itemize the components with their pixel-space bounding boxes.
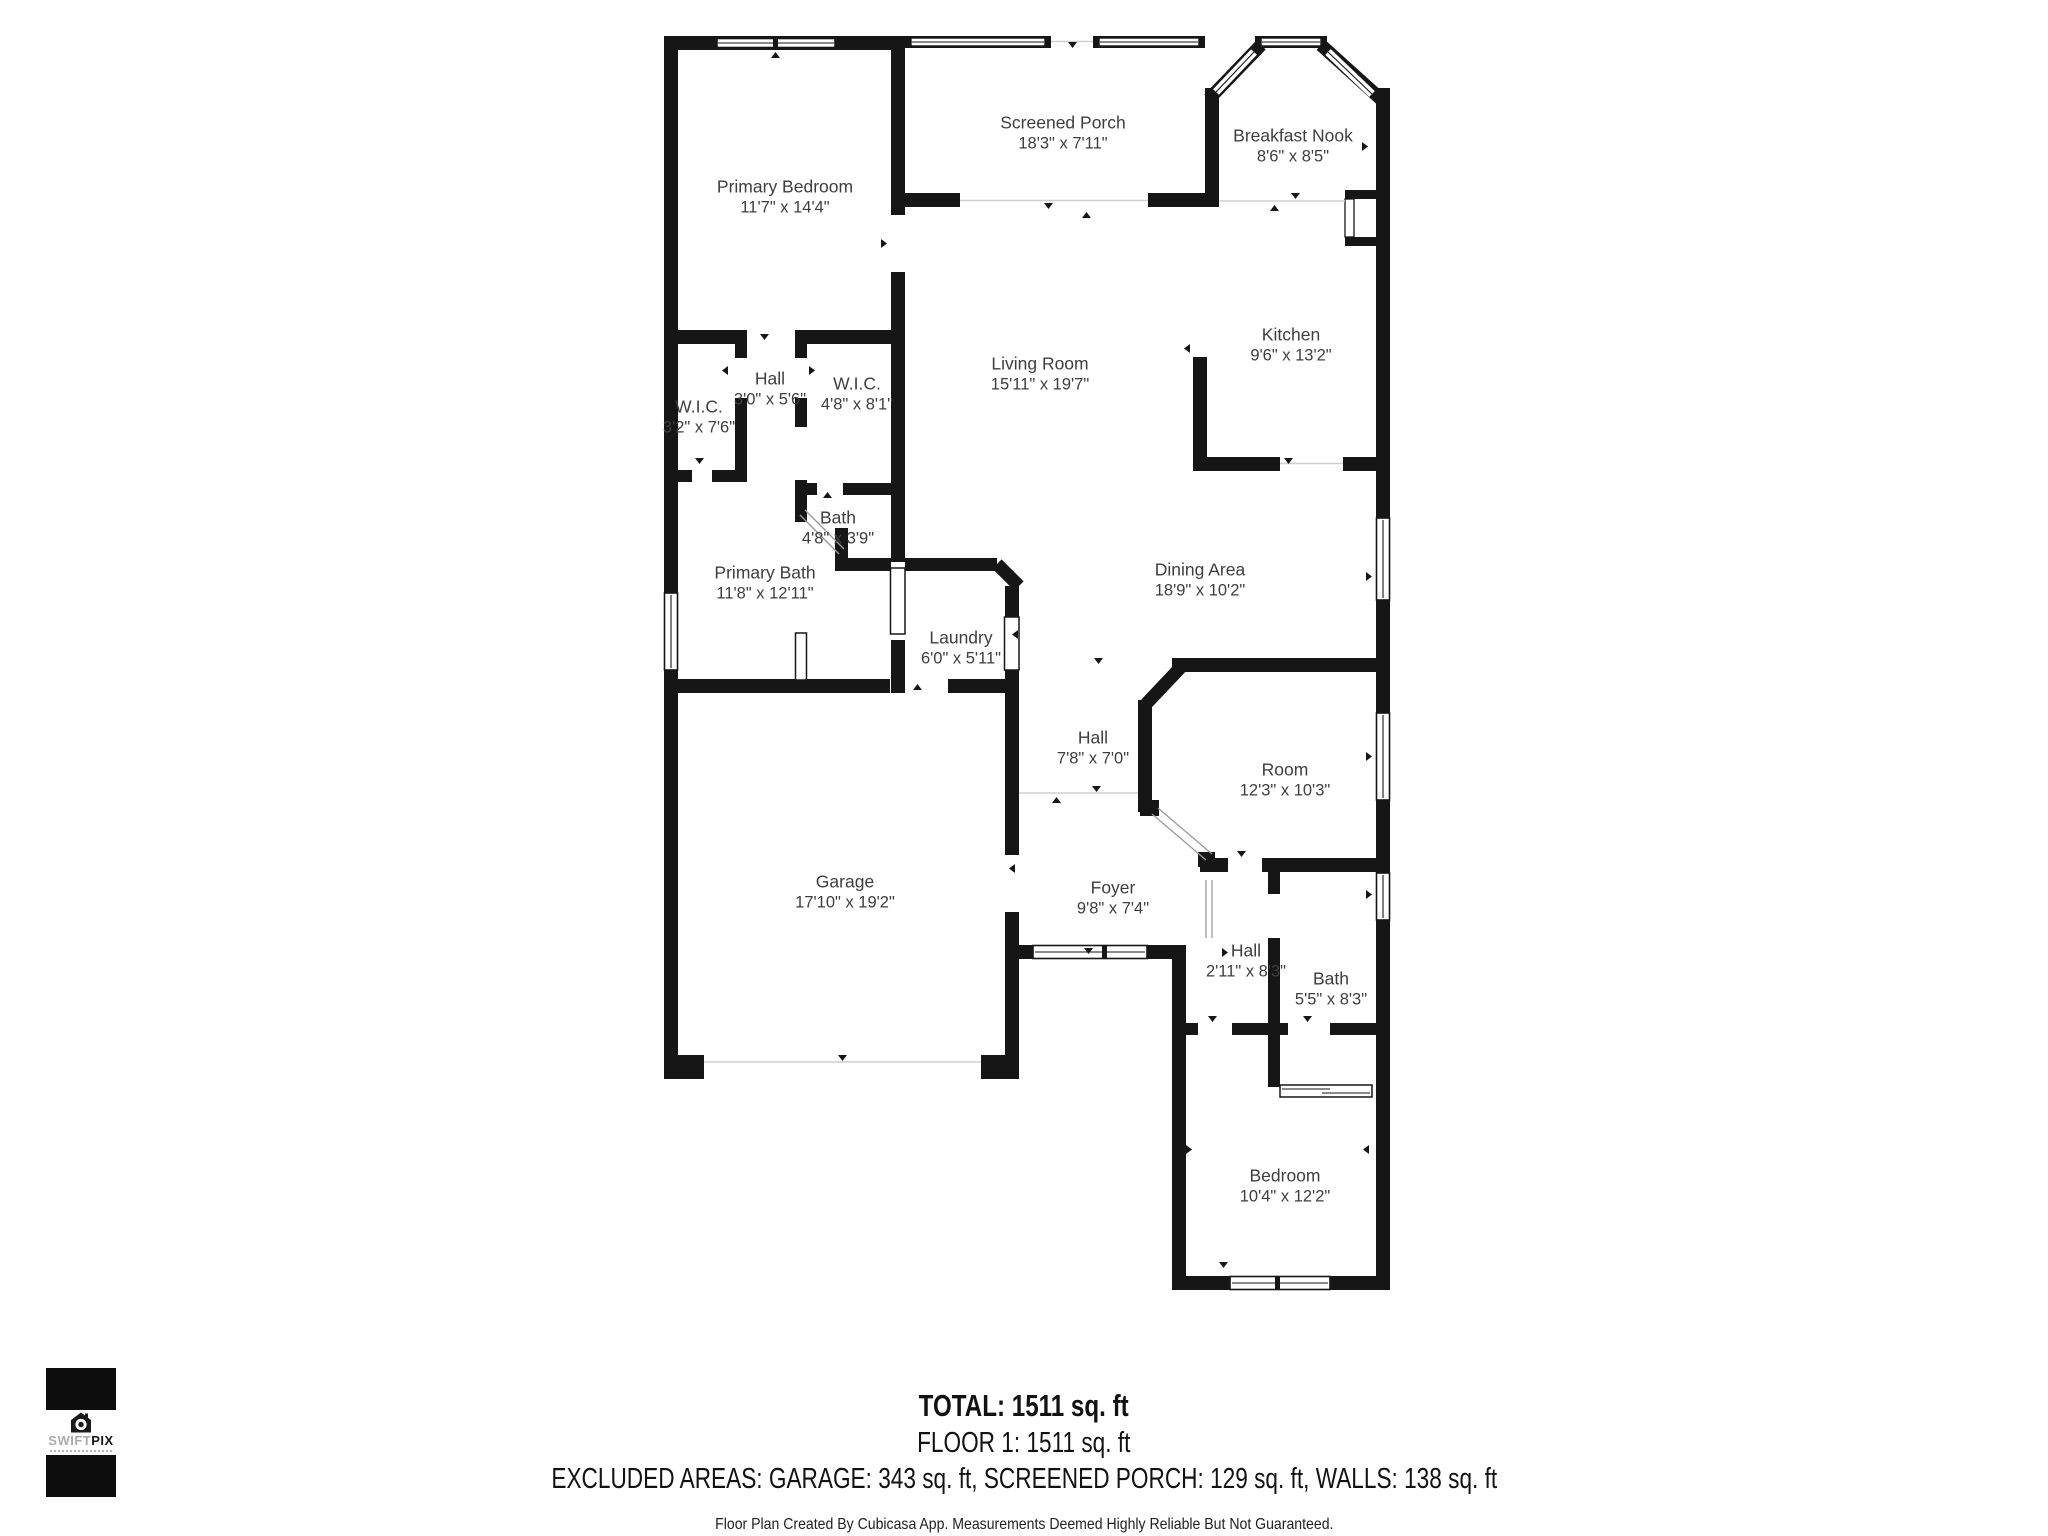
logo-block-bottom bbox=[46, 1455, 116, 1497]
total-area-text: TOTAL: 1511 sq. ft bbox=[919, 1388, 1129, 1424]
logo-text-swift: SWIFT bbox=[48, 1433, 91, 1448]
logo-block-top bbox=[46, 1368, 116, 1410]
swiftpix-logo: SWIFTPIX bbox=[46, 1368, 116, 1497]
logo-wordmark: SWIFTPIX bbox=[48, 1434, 113, 1447]
floor-area-text: FLOOR 1: 1511 sq. ft bbox=[917, 1427, 1130, 1460]
logo-tagline-line bbox=[50, 1450, 112, 1452]
walls bbox=[664, 36, 1390, 1290]
summary-footer: TOTAL: 1511 sq. ft FLOOR 1: 1511 sq. ft … bbox=[0, 1388, 2048, 1534]
floor-plan-page: Primary Bedroom 11'7" x 14'4" Screened P… bbox=[0, 0, 2048, 1536]
diagonal-walls bbox=[997, 45, 1383, 704]
logo-text-pix: PIX bbox=[91, 1433, 113, 1448]
floor-plan-drawing bbox=[0, 0, 2048, 1536]
excluded-areas-text: EXCLUDED AREAS: GARAGE: 343 sq. ft, SCRE… bbox=[551, 1463, 1497, 1496]
open-boundaries bbox=[704, 42, 1345, 1063]
disclaimer-text: Floor Plan Created By Cubicasa App. Meas… bbox=[715, 1516, 1333, 1534]
house-camera-icon bbox=[70, 1412, 92, 1433]
